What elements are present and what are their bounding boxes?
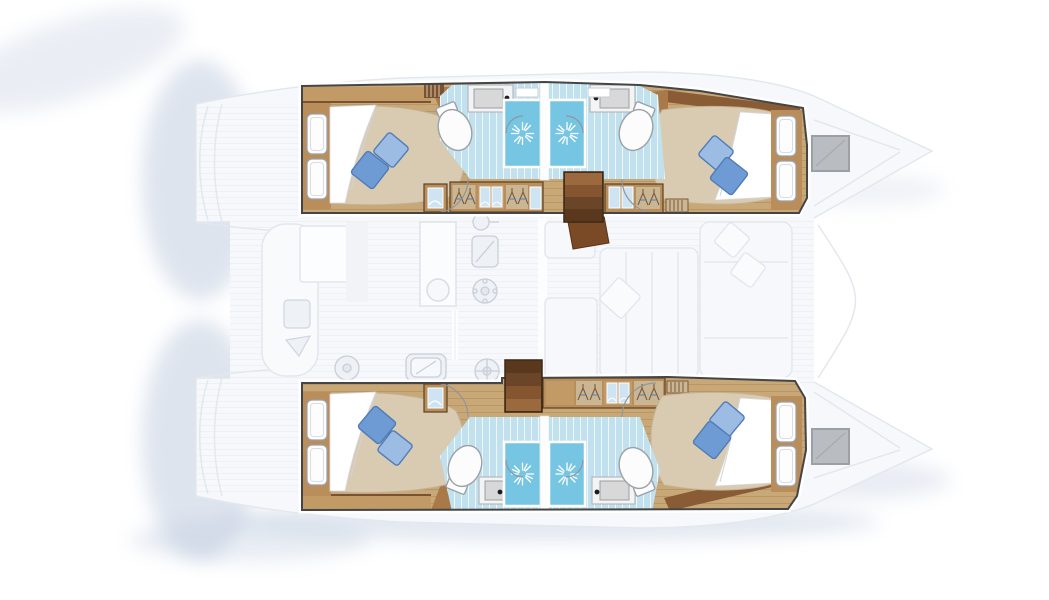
port-companionway-stairs [564, 172, 603, 222]
vanity-basin [474, 89, 503, 108]
shower-cubicle [549, 100, 585, 167]
side-cabinet [424, 384, 447, 412]
window-sill [516, 88, 538, 97]
wardrobe-row [543, 378, 665, 408]
floor-grill [667, 381, 688, 393]
shelf [303, 494, 431, 510]
burner-icon [473, 279, 497, 303]
helm-icon [475, 359, 499, 383]
faucet [595, 490, 600, 495]
window-sill [588, 88, 610, 97]
faucet [498, 490, 503, 495]
shelf [303, 87, 431, 103]
bathroom-divider-wall [540, 416, 549, 514]
bathroom-divider-wall [540, 79, 549, 180]
starboard-hull-interior [298, 360, 813, 515]
floor-grill [666, 199, 688, 212]
shower-cubicle [504, 100, 541, 167]
stove-icon [406, 354, 446, 381]
winch-icon [335, 356, 359, 380]
vanity-basin [600, 481, 629, 500]
side-cabinet [424, 184, 447, 212]
floorplan-canvas [0, 0, 1049, 600]
catamaran-floorplan [0, 0, 1049, 600]
shower-cubicle [504, 442, 541, 506]
galley-sink [427, 279, 449, 301]
port-hull-interior [298, 79, 813, 222]
wardrobe-row-aft [450, 182, 543, 212]
shower-cubicle [549, 442, 585, 506]
starboard-companionway-stairs [505, 360, 542, 412]
